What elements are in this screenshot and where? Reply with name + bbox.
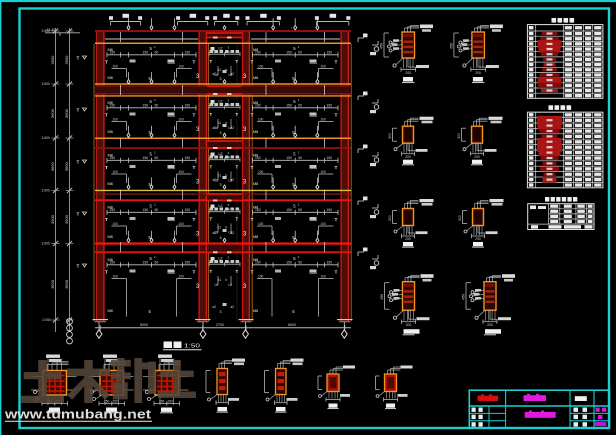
svg-text:3.600: 3.600 (42, 189, 50, 193)
svg-text:200: 200 (405, 71, 411, 75)
svg-text:6000: 6000 (288, 323, 296, 327)
svg-text:150: 150 (143, 156, 149, 160)
svg-text:T: T (193, 113, 196, 119)
svg-text:50: 50 (298, 156, 302, 160)
svg-text:M8: M8 (253, 76, 258, 80)
svg-text:100: 100 (179, 65, 185, 69)
svg-text:M8: M8 (253, 130, 258, 134)
svg-text:3: 3 (220, 131, 222, 135)
svg-text:M8: M8 (108, 130, 113, 134)
svg-text:50: 50 (298, 104, 302, 108)
svg-text:100: 100 (113, 170, 119, 174)
svg-text:3: 3 (220, 236, 222, 240)
svg-text:150: 150 (110, 156, 116, 160)
svg-text:100: 100 (179, 118, 185, 122)
svg-text:50: 50 (155, 104, 159, 108)
svg-text:T: T (335, 165, 338, 171)
svg-text:450: 450 (462, 294, 466, 300)
svg-text:www.tumubang.net: www.tumubang.net (4, 407, 152, 422)
svg-text:T: T (105, 217, 108, 223)
svg-text:3: 3 (220, 310, 222, 314)
svg-text:T: T (105, 165, 108, 171)
svg-text:100: 100 (258, 65, 264, 69)
svg-text:3600: 3600 (50, 55, 55, 65)
svg-text:3600: 3600 (64, 214, 69, 224)
svg-text:150: 150 (286, 156, 292, 160)
svg-text:T: T (251, 113, 254, 119)
svg-text:150: 150 (255, 261, 261, 265)
svg-text:24: 24 (227, 260, 231, 264)
svg-text:250: 250 (168, 400, 174, 404)
svg-text:T: T (335, 217, 338, 223)
svg-text:3600: 3600 (50, 162, 55, 172)
svg-text:150: 150 (255, 104, 261, 108)
svg-text:3600: 3600 (64, 55, 69, 65)
svg-text:M8: M8 (108, 182, 113, 186)
svg-text:50: 50 (298, 51, 302, 55)
svg-text:T: T (77, 160, 80, 165)
svg-text:150: 150 (255, 51, 261, 55)
svg-text:3600: 3600 (50, 214, 55, 224)
svg-text:T: T (210, 165, 213, 170)
svg-text:T: T (210, 217, 213, 222)
svg-text:150: 150 (327, 104, 333, 108)
svg-text:200: 200 (405, 237, 411, 241)
svg-text:3.600: 3.600 (42, 136, 50, 140)
svg-text:T: T (77, 212, 80, 217)
svg-text:150: 150 (185, 261, 191, 265)
svg-text:150: 150 (185, 208, 191, 212)
svg-text:M8: M8 (108, 309, 113, 313)
svg-text:200: 200 (406, 323, 412, 327)
svg-text:b: b (226, 226, 228, 230)
svg-text:24: 24 (214, 156, 218, 160)
svg-text:T: T (335, 113, 338, 119)
svg-text:100: 100 (179, 170, 185, 174)
svg-text:M8: M8 (253, 182, 258, 186)
svg-text:3.600: 3.600 (42, 242, 50, 246)
svg-text:L2: L2 (219, 47, 223, 51)
svg-text:100: 100 (258, 118, 264, 122)
svg-text:3600: 3600 (64, 162, 69, 172)
svg-text:50: 50 (155, 261, 159, 265)
svg-text:150: 150 (255, 208, 261, 212)
svg-text:100: 100 (113, 222, 119, 226)
svg-text:250: 250 (113, 400, 119, 404)
svg-text:24: 24 (214, 208, 218, 212)
svg-text:150: 150 (286, 208, 292, 212)
svg-text:100: 100 (258, 170, 264, 174)
svg-text:L2: L2 (219, 204, 223, 208)
svg-text:150: 150 (185, 51, 191, 55)
svg-text:T: T (236, 112, 239, 117)
svg-text:T: T (77, 264, 80, 269)
svg-text:2700: 2700 (216, 323, 224, 327)
svg-text:T: T (193, 165, 196, 171)
svg-text:150: 150 (327, 261, 333, 265)
svg-text:T: T (105, 113, 108, 119)
svg-text:T: T (251, 270, 254, 276)
svg-text:200: 200 (487, 323, 493, 327)
svg-text:150: 150 (110, 104, 116, 108)
svg-text:150: 150 (143, 261, 149, 265)
svg-text:150: 150 (143, 51, 149, 55)
svg-text:100: 100 (113, 118, 119, 122)
svg-text:150: 150 (327, 208, 333, 212)
svg-text:a2: a2 (213, 231, 217, 235)
svg-text:150: 150 (143, 104, 149, 108)
svg-text:T: T (210, 269, 213, 274)
svg-text:250: 250 (104, 400, 110, 404)
svg-text:a2: a2 (213, 126, 217, 130)
svg-text:3600: 3600 (50, 279, 55, 289)
svg-text:300: 300 (388, 215, 392, 221)
svg-text:T: T (210, 59, 213, 64)
svg-text:1:50: 1:50 (184, 344, 200, 350)
svg-text:300: 300 (388, 133, 392, 139)
svg-text:100: 100 (321, 222, 327, 226)
svg-text:3600: 3600 (50, 108, 55, 118)
svg-text:250: 250 (159, 400, 165, 404)
svg-text:100: 100 (258, 275, 264, 279)
svg-text:100: 100 (321, 170, 327, 174)
svg-text:T: T (105, 60, 108, 66)
svg-text:50: 50 (155, 208, 159, 212)
svg-text:T: T (236, 59, 239, 64)
svg-text:24: 24 (227, 156, 231, 160)
svg-text:3.600: 3.600 (42, 82, 50, 86)
svg-text:50: 50 (155, 51, 159, 55)
svg-text:150: 150 (286, 51, 292, 55)
svg-text:T: T (236, 165, 239, 170)
svg-text:T: T (236, 269, 239, 274)
svg-text:150: 150 (110, 261, 116, 265)
svg-text:100: 100 (113, 65, 119, 69)
svg-text:M8: M8 (108, 235, 113, 239)
svg-text:200: 200 (405, 155, 411, 159)
svg-text:150: 150 (185, 156, 191, 160)
svg-text:,: , (291, 24, 292, 30)
svg-text:150: 150 (327, 51, 333, 55)
svg-text:a2: a2 (213, 178, 217, 182)
svg-text:200: 200 (474, 155, 480, 159)
svg-text:450: 450 (449, 43, 453, 49)
svg-text:14.40: 14.40 (47, 28, 56, 32)
svg-text:300: 300 (457, 133, 461, 139)
svg-text:150: 150 (255, 156, 261, 160)
svg-text:L2: L2 (219, 100, 223, 104)
svg-text:T: T (335, 270, 338, 276)
svg-text:3600: 3600 (64, 279, 69, 289)
svg-text:300: 300 (458, 215, 462, 221)
svg-text:M8: M8 (108, 76, 113, 80)
svg-text:a2: a2 (213, 305, 217, 309)
svg-text:b: b (226, 278, 228, 282)
svg-text:100: 100 (321, 65, 327, 69)
svg-text:6000: 6000 (140, 323, 148, 327)
svg-text:T: T (105, 270, 108, 276)
svg-text:M8: M8 (253, 235, 258, 239)
svg-text:M8: M8 (253, 309, 258, 313)
svg-text:200: 200 (475, 237, 481, 241)
svg-text:L8: L8 (229, 283, 233, 287)
svg-text:T: T (251, 217, 254, 223)
svg-text:T: T (193, 60, 196, 66)
svg-text:50: 50 (298, 261, 302, 265)
svg-text:T: T (77, 108, 80, 113)
svg-text:24: 24 (214, 260, 218, 264)
svg-text:150: 150 (185, 104, 191, 108)
svg-text:450: 450 (380, 43, 384, 49)
svg-text:100: 100 (321, 275, 327, 279)
svg-text:24: 24 (214, 103, 218, 107)
svg-text:3: 3 (220, 77, 222, 81)
svg-text:a2: a2 (213, 72, 217, 76)
svg-text:150: 150 (110, 51, 116, 55)
svg-text:3: 3 (220, 183, 222, 187)
svg-text:150: 150 (327, 156, 333, 160)
svg-text:24: 24 (214, 50, 218, 54)
svg-text:T: T (335, 60, 338, 66)
svg-text:450: 450 (380, 294, 384, 300)
svg-text:100: 100 (258, 222, 264, 226)
svg-text:3600: 3600 (64, 108, 69, 118)
svg-text:50: 50 (155, 156, 159, 160)
svg-text:a2: a2 (231, 305, 235, 309)
svg-text:150: 150 (286, 104, 292, 108)
svg-text:T: T (236, 217, 239, 222)
svg-text:T: T (193, 270, 196, 276)
svg-text:L2: L2 (219, 152, 223, 156)
svg-text:100: 100 (113, 275, 119, 279)
svg-text:24: 24 (227, 50, 231, 54)
svg-text:,: , (152, 24, 153, 30)
svg-text:T: T (193, 217, 196, 223)
svg-text:100: 100 (179, 275, 185, 279)
svg-text:L2: L2 (219, 257, 223, 261)
svg-text:200: 200 (475, 71, 481, 75)
svg-text:T: T (251, 165, 254, 171)
svg-text:150: 150 (286, 261, 292, 265)
svg-text:24: 24 (227, 103, 231, 107)
svg-text:24: 24 (227, 208, 231, 212)
svg-text:150: 150 (143, 208, 149, 212)
svg-text:100: 100 (179, 222, 185, 226)
svg-text:50: 50 (298, 208, 302, 212)
svg-text:100: 100 (321, 118, 327, 122)
svg-text:T: T (210, 112, 213, 117)
svg-text:T: T (251, 60, 254, 66)
svg-text:T: T (77, 56, 80, 61)
svg-text:150: 150 (110, 208, 116, 212)
svg-text:-0.050: -0.050 (42, 318, 52, 322)
